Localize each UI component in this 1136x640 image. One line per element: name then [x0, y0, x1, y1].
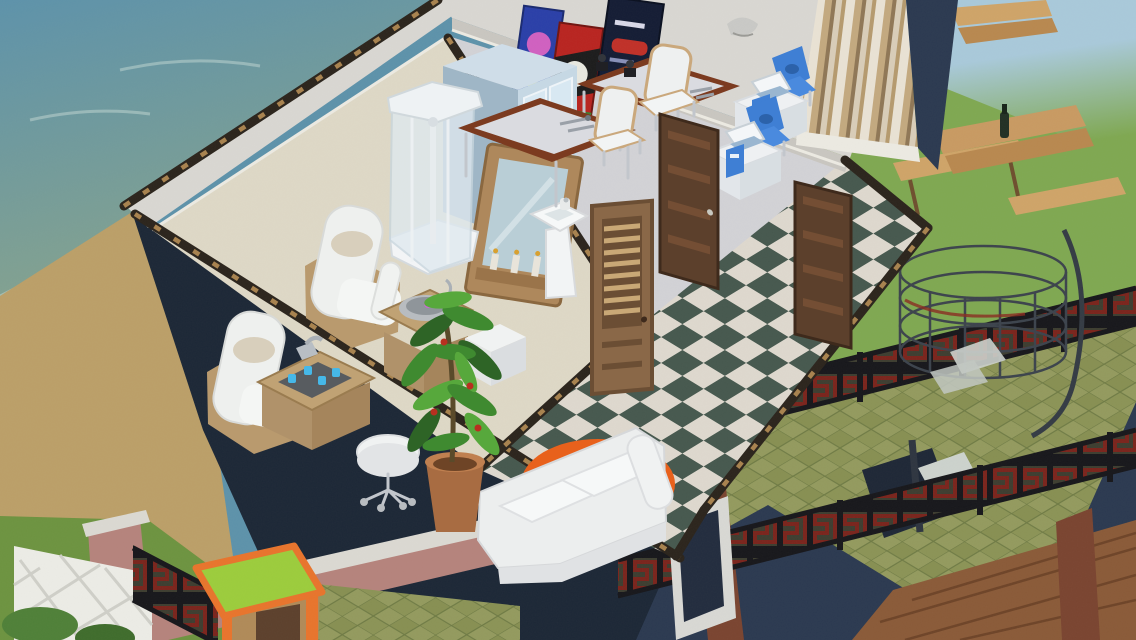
louver-door[interactable] — [592, 201, 652, 394]
panel-door-hallway[interactable] — [795, 182, 851, 348]
shower-stall[interactable] — [388, 82, 482, 274]
panel-door-office[interactable] — [660, 114, 718, 289]
game-viewport — [0, 0, 1136, 640]
